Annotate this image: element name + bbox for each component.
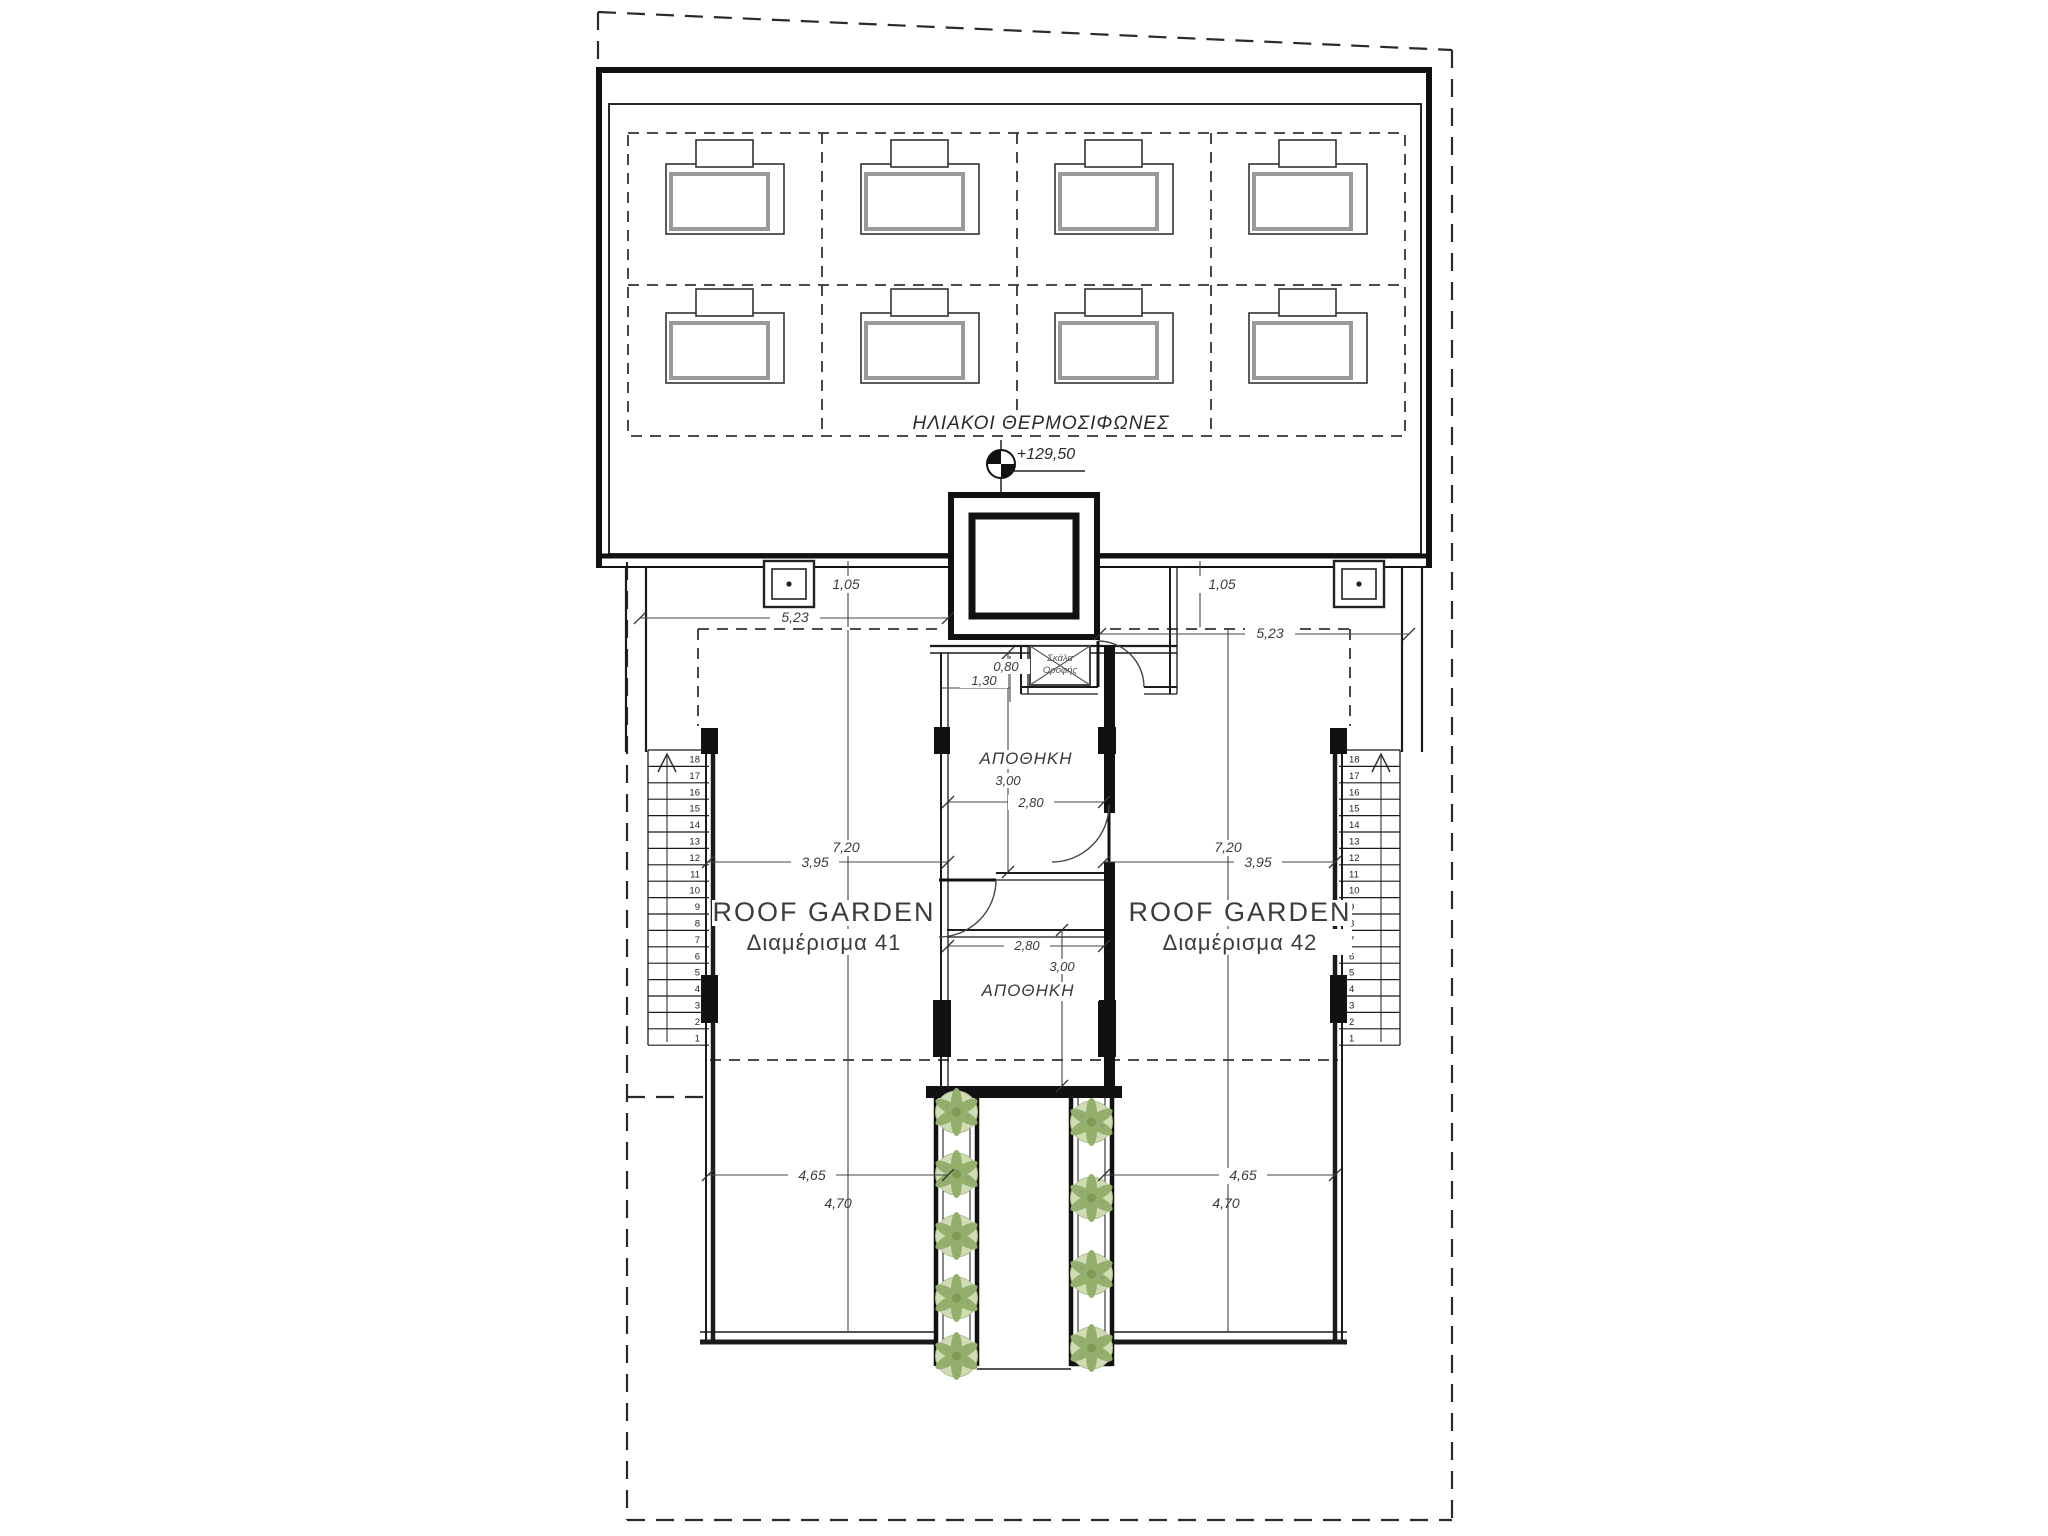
dim-storage-upper-width: 2,80 <box>1017 795 1044 810</box>
solar-heaters-label: ΗΛΙΑΚΟΙ ΘΕΡΜΟΣΙΦΩΝΕΣ <box>913 413 1170 434</box>
stair-tread-number: 16 <box>689 787 700 798</box>
stair-tread-number: 10 <box>689 886 700 897</box>
dim-garden-depth-right: 7,20 <box>1214 839 1241 855</box>
stair-tread-number: 7 <box>695 935 700 946</box>
dim-hatch-width: 0,80 <box>993 659 1019 674</box>
dim-parapet-offset-left: 1,05 <box>832 576 859 592</box>
chimney-left <box>764 561 814 607</box>
stair-tread-number: 17 <box>689 771 700 782</box>
storage-lower-label: ΑΠΟΘΗΚΗ <box>981 981 1075 1000</box>
dim-garden-width2-left: 4,70 <box>824 1195 851 1211</box>
dim-storage-upper-depth: 3,00 <box>995 773 1021 788</box>
roof-ladder-label-2: Οροφής <box>1043 665 1078 676</box>
stair-tread-number: 1 <box>695 1033 700 1044</box>
roof-ladder-box: Σκάλα Οροφής <box>1030 646 1090 685</box>
stair-tread-number: 6 <box>695 951 700 962</box>
stair-tread-number: 13 <box>1349 837 1360 848</box>
roof-garden-right-subtitle: Διαμέρισμα 42 <box>1163 930 1318 955</box>
stair-tread-number: 18 <box>1349 755 1360 766</box>
dim-storage-lower-depth: 3,00 <box>1049 959 1075 974</box>
stair-tread-number: 15 <box>689 804 700 815</box>
roof-garden-right-title: ROOF GARDEN <box>1128 897 1351 927</box>
stair-tread-number: 1 <box>1349 1033 1354 1044</box>
roof-floor-plan: ΗΛΙΑΚΟΙ ΘΕΡΜΟΣΙΦΩΝΕΣ +129,50 <box>0 0 2048 1536</box>
dim-parapet-width-right: 5,23 <box>1256 625 1283 641</box>
stair-tread-number: 4 <box>695 984 700 995</box>
stair-tread-number: 13 <box>689 837 700 848</box>
stair-tread-number: 3 <box>1349 1001 1354 1012</box>
dim-garden-width-right: 4,65 <box>1229 1167 1256 1183</box>
dim-parapet-width-left: 5,23 <box>781 609 808 625</box>
dim-storage-lower-width: 2,80 <box>1013 938 1040 953</box>
elevation-label: +129,50 <box>1017 446 1075 463</box>
stair-tread-number: 15 <box>1349 804 1360 815</box>
stair-tread-number: 8 <box>695 919 700 930</box>
dim-garden-width2-right: 4,70 <box>1212 1195 1239 1211</box>
stair-tread-number: 2 <box>695 1017 700 1028</box>
stair-tread-number: 14 <box>689 820 700 831</box>
elevator-shaft <box>951 495 1097 637</box>
dim-garden-split-left: 3,95 <box>801 854 828 870</box>
stair-tread-number: 5 <box>695 968 700 979</box>
stair-tread-number: 16 <box>1349 787 1360 798</box>
dim-parapet-offset-right: 1,05 <box>1208 576 1235 592</box>
stair-tread-number: 14 <box>1349 820 1360 831</box>
roof-ladder-label-1: Σκάλα <box>1046 653 1073 664</box>
stair-tread-number: 9 <box>695 902 700 913</box>
stair-tread-number: 11 <box>690 869 700 880</box>
stair-tread-number: 11 <box>1349 869 1359 880</box>
dim-garden-width-left: 4,65 <box>798 1167 825 1183</box>
dim-hatch-offset: 1,30 <box>971 673 997 688</box>
dim-garden-depth-left: 7,20 <box>832 839 859 855</box>
stair-tread-number: 2 <box>1349 1017 1354 1028</box>
stair-tread-number: 4 <box>1349 984 1354 995</box>
storage-upper-label: ΑΠΟΘΗΚΗ <box>979 749 1073 768</box>
stair-tread-number: 5 <box>1349 968 1354 979</box>
stair-tread-number: 3 <box>695 1001 700 1012</box>
dim-garden-split-right: 3,95 <box>1244 854 1271 870</box>
stair-tread-number: 10 <box>1349 886 1360 897</box>
stair-tread-number: 12 <box>1349 853 1360 864</box>
chimney-right <box>1334 561 1384 607</box>
stair-tread-number: 17 <box>1349 771 1360 782</box>
roof-garden-left-title: ROOF GARDEN <box>712 897 935 927</box>
stair-tread-number: 12 <box>689 853 700 864</box>
roof-garden-left-subtitle: Διαμέρισμα 41 <box>747 930 902 955</box>
stair-tread-number: 18 <box>689 755 700 766</box>
